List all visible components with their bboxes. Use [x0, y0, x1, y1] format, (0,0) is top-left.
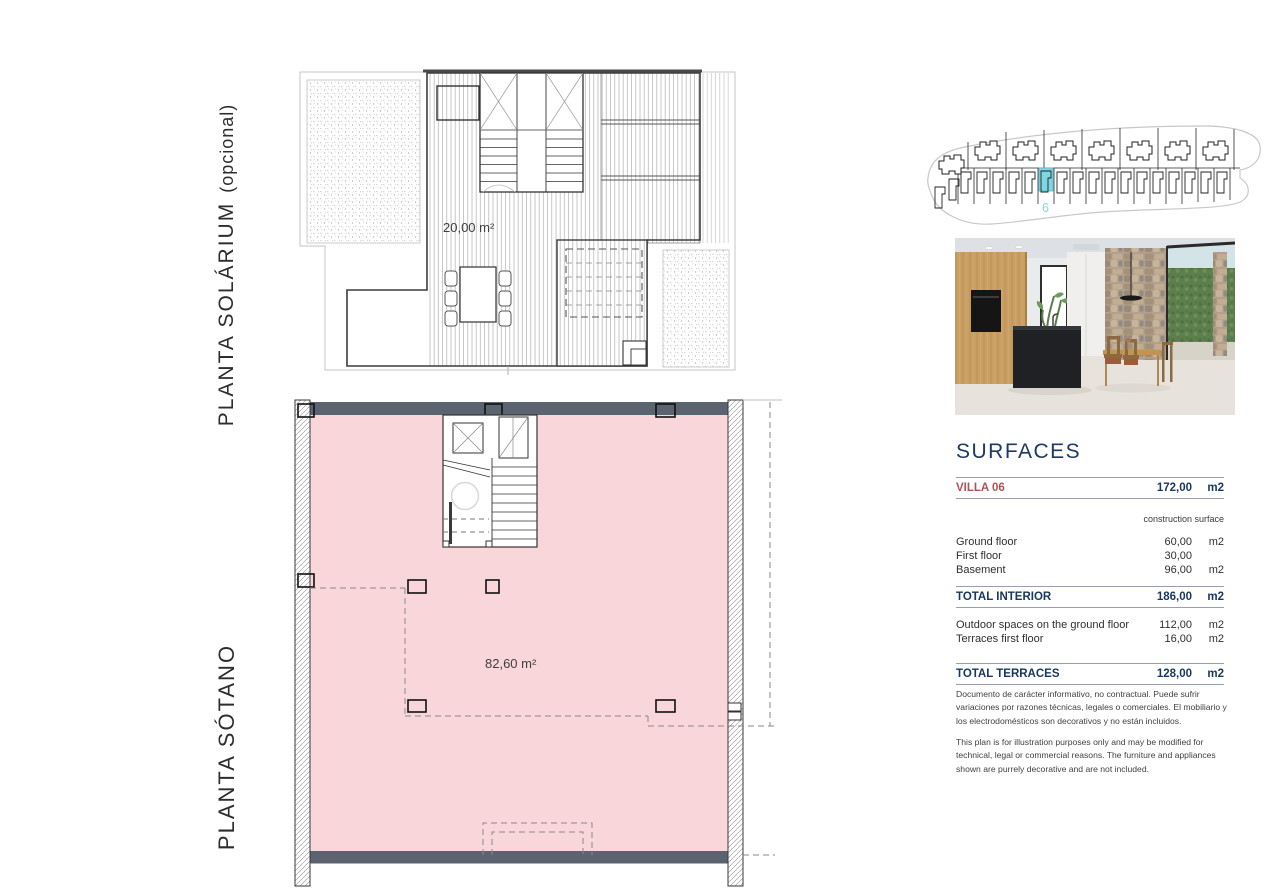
- basement-floor-plan: 82,60 m²: [293, 398, 782, 889]
- gravel-area-left: [307, 80, 420, 243]
- site-boundary: [928, 126, 1261, 224]
- villa-total-unit: m2: [1192, 481, 1224, 495]
- outdoor-rows: Outdoor spaces on the ground floor 112,0…: [956, 618, 1224, 646]
- solarium-floor-plan: 20,00 m²: [295, 60, 740, 375]
- plan-sheet: PLANTA SOLÁRIUM (opcional) PLANTA SÓTANO: [0, 0, 1285, 889]
- villa-summary-row: VILLA 06 172,00 m2: [956, 477, 1224, 499]
- gravel-area-right: [663, 250, 729, 367]
- pergola-area: [557, 240, 647, 366]
- table-row: Terraces first floor 16,00 m2: [956, 632, 1224, 646]
- disclaimer-spanish: Documento de carácter informativo, no co…: [956, 688, 1228, 728]
- solarium-plan-label-suffix: (opcional): [217, 104, 238, 193]
- planter-box: [437, 86, 479, 120]
- total-interior-row: TOTAL INTERIOR 186,00 m2: [956, 586, 1224, 608]
- garden-opening: [1167, 243, 1235, 360]
- villa-name: VILLA 06: [956, 481, 1134, 495]
- villa-footprints: [939, 141, 1228, 174]
- solarium-area-label: 20,00 m²: [443, 220, 495, 235]
- basement-area-label: 82,60 m²: [485, 656, 537, 671]
- bottom-slab: [310, 851, 728, 864]
- total-terraces-row: TOTAL TERRACES 128,00 m2: [956, 663, 1224, 685]
- table-row: Ground floor 60,00 m2: [956, 535, 1224, 549]
- outdoor-dining-set: [445, 267, 511, 326]
- solarium-staircase: [480, 73, 583, 192]
- surfaces-panel: SURFACES VILLA 06 172,00 m2 construction…: [956, 440, 1224, 685]
- solarium-plan-label: PLANTA SOLÁRIUM: [215, 202, 239, 427]
- interior-photo: [955, 238, 1235, 415]
- table-row: Basement 96,00 m2: [956, 563, 1224, 577]
- kitchen-island: [1008, 314, 1092, 395]
- construction-surface-note: construction surface: [956, 514, 1224, 524]
- villa-number-label: 6: [1042, 201, 1049, 215]
- right-wall: [728, 400, 743, 886]
- solarium-plan-title: PLANTA SOLÁRIUM (opcional): [205, 100, 249, 430]
- surfaces-title: SURFACES: [956, 440, 1224, 464]
- disclaimer-block: Documento de carácter informativo, no co…: [956, 688, 1228, 784]
- basement-plan-label: PLANTA SÓTANO: [214, 644, 240, 850]
- disclaimer-english: This plan is for illustration purposes o…: [956, 736, 1228, 776]
- right-wall-stubs: [728, 703, 741, 720]
- basement-staircase: [443, 415, 537, 547]
- left-wall: [295, 400, 310, 886]
- basement-plan-title: PLANTA SÓTANO: [205, 637, 249, 857]
- villa-total-value: 172,00: [1134, 481, 1192, 495]
- table-row: First floor 30,00: [956, 549, 1224, 563]
- table-row: Outdoor spaces on the ground floor 112,0…: [956, 618, 1224, 632]
- plot-shapes: [935, 171, 1227, 208]
- interior-rows: Ground floor 60,00 m2 First floor 30,00 …: [956, 535, 1224, 577]
- site-plan: 6: [922, 116, 1270, 238]
